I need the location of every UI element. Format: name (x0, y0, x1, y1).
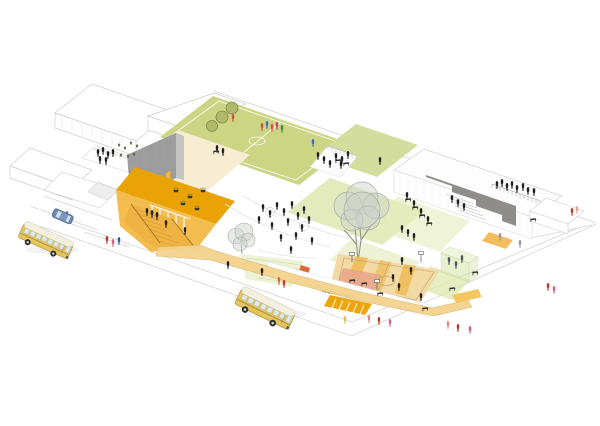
fig-instance (368, 315, 371, 323)
fig-instance (308, 216, 311, 224)
field-tree (216, 111, 228, 123)
fig-instance (469, 326, 472, 334)
fig-instance (283, 208, 286, 216)
fig-instance (280, 234, 283, 242)
fig-instance (389, 319, 392, 327)
fig-instance (227, 261, 230, 269)
fig-instance (287, 218, 290, 226)
fig-instance (311, 237, 314, 245)
fig-instance (344, 316, 347, 324)
fig-instance (297, 212, 300, 220)
school-bus-2 (233, 285, 297, 333)
school-bus-1 (16, 220, 75, 262)
fig-instance (112, 239, 115, 247)
fig-instance (262, 204, 265, 212)
site-axonometric-illustration: middle school (0, 0, 600, 426)
fig-instance (283, 280, 286, 288)
fig-instance (301, 224, 304, 232)
car (51, 208, 74, 225)
fig-instance (106, 236, 109, 244)
fig-instance (290, 246, 293, 254)
facade-side-wall (176, 133, 184, 180)
small-tree (228, 223, 255, 254)
field-tree (226, 102, 238, 114)
illustration-canvas: middle school (0, 0, 600, 426)
fig-instance (547, 283, 550, 291)
fig-instance (276, 202, 279, 210)
fig-instance (519, 240, 522, 248)
fig-instance (295, 232, 298, 240)
fig-instance (447, 321, 450, 329)
field-tree (207, 121, 218, 132)
fig-instance (553, 286, 556, 294)
crosswalk-right (482, 232, 513, 249)
fig-instance (457, 324, 460, 332)
